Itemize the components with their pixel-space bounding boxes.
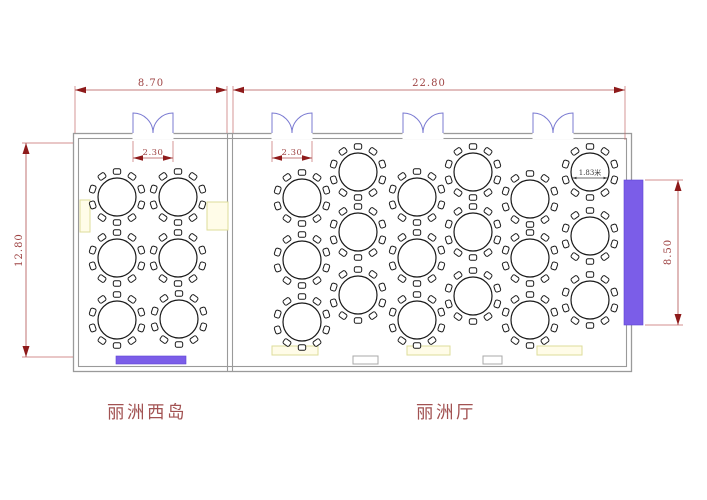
dim-arrow-right [614,87,625,93]
chair [298,170,305,176]
chair [570,275,579,284]
banquet-table [330,267,386,324]
chair [188,213,197,222]
service-table [537,346,582,355]
chair [540,295,549,304]
banquet-table [151,291,207,348]
dim-arrow-bottom [675,314,682,325]
banquet-table [445,144,501,201]
chair [151,307,159,316]
chair [338,248,347,257]
chair [158,274,167,283]
chair [570,188,579,197]
double-door: 2.30 [272,113,313,162]
chair [127,213,136,222]
chair [562,288,570,297]
left-room-stage [116,356,186,364]
chair [368,311,377,320]
chair [445,300,453,309]
chair [397,274,406,283]
chair [113,230,120,236]
banquet-table [150,169,206,226]
chair [437,324,445,333]
chair [427,233,436,242]
chair [274,202,282,211]
wall-notch [483,356,502,364]
floor-plan-drawing: 2.302.30 1.83米 8.70 22.80 12.80 8.50 [0,0,707,500]
table-top [454,277,492,315]
chair [312,276,321,285]
chair [469,255,476,261]
door-leaf-left [272,113,292,133]
chair [526,281,533,287]
chair [427,172,436,181]
chair [137,185,145,194]
chair [368,270,377,279]
chair [427,213,436,222]
table-top [283,241,321,279]
chair [469,204,476,210]
chair [298,232,305,238]
chair [282,297,291,306]
chair [389,324,397,333]
banquet-table [150,230,206,287]
chair [413,220,420,226]
door-leaf-right [153,113,173,133]
chair [338,270,347,279]
chair [562,304,570,313]
chair [610,288,618,297]
chair [469,319,476,325]
table-top [398,178,436,216]
chair [312,235,321,244]
chair [526,230,533,236]
chair [354,144,361,150]
chair [562,224,570,233]
chair [600,316,609,325]
chair [397,336,406,345]
chair [174,169,181,175]
banquet-table [89,230,145,287]
chair [586,259,593,265]
chair [510,233,519,242]
chair [127,295,136,304]
chair [322,326,330,335]
chair [282,214,291,223]
banquet-table [330,144,386,201]
table-top [571,281,609,319]
banquet-table [389,169,445,226]
table-top [159,239,197,277]
chair [330,176,338,185]
chair [437,308,445,317]
banquet-table [502,292,558,349]
chair [368,147,377,156]
chair [97,213,106,222]
chair [113,281,120,287]
chair [427,274,436,283]
chair [282,235,291,244]
chair [330,160,338,169]
chair [274,310,282,319]
banquet-table [562,208,618,265]
chair [330,299,338,308]
chair [322,248,330,257]
chair [113,343,120,349]
chair [378,160,386,169]
chair [322,264,330,273]
chair [600,252,609,261]
chair [274,264,282,273]
floor-plan-page: 2.302.30 1.83米 8.70 22.80 12.80 8.50 [0,0,707,500]
chair [274,186,282,195]
chair [540,336,549,345]
chair [437,201,445,210]
chair [550,308,558,317]
chair [502,187,510,196]
chair [540,174,549,183]
chair [89,262,97,271]
chair [502,203,510,212]
chair [600,211,609,220]
chair [89,324,97,333]
chair [312,297,321,306]
chair [453,207,462,216]
chair [397,213,406,222]
chair [389,246,397,255]
chair [493,220,501,229]
chair [389,308,397,317]
chair [389,262,397,271]
chair [298,221,305,227]
banquet-table [389,292,445,349]
chair [378,176,386,185]
dim-arrow-top [675,180,682,191]
chair [174,281,181,287]
chair [483,147,492,156]
chair [493,176,501,185]
chair [150,262,158,271]
chair [413,230,420,236]
chair [510,336,519,345]
dim-text-left-room-width: 8.70 [138,78,164,89]
chair [562,176,570,185]
chair [188,172,197,181]
chair [610,240,618,249]
chair [453,248,462,257]
chair [562,160,570,169]
chair [453,188,462,197]
door-width-dimension: 2.30 [143,148,164,158]
chair [127,336,136,345]
chair [526,292,533,298]
dimension-stage-length: 8.50 [645,180,683,325]
chair [413,281,420,287]
chair [330,283,338,292]
chair [89,185,97,194]
chair [282,276,291,285]
left-room-label: 丽洲西岛 [107,402,187,422]
service-table [207,202,228,230]
chair [378,299,386,308]
door-leaf-left [403,113,423,133]
chair [159,294,168,303]
chair [198,185,206,194]
chair [174,220,181,226]
table-top [98,301,136,339]
chair [188,233,197,242]
dimension-door-width: 2.30 [133,141,173,162]
chair [437,185,445,194]
chair [368,207,377,216]
chair [97,172,106,181]
chair [610,224,618,233]
banquet-table [502,230,558,287]
chair [526,222,533,228]
dim-arrow-top [23,143,30,154]
chair [175,291,182,297]
chair [127,233,136,242]
chair [199,307,207,316]
chair [510,174,519,183]
chair [198,201,206,210]
chair [312,214,321,223]
chair [469,195,476,201]
dim-arrow-right [216,87,227,93]
chair [483,207,492,216]
dim-text-hall-depth: 12.80 [14,233,25,267]
chair [453,147,462,156]
door-leaf-left [133,113,153,133]
chair [586,208,593,214]
door-leaf-left [533,113,553,133]
chair [550,203,558,212]
chair [175,342,182,348]
chair [586,272,593,278]
chair [550,246,558,255]
chair [483,271,492,280]
table-diameter-label: 1.83米 [579,168,602,177]
chair [526,171,533,177]
chair [97,295,106,304]
banquet-table [274,232,330,289]
chair [453,312,462,321]
chair [368,248,377,257]
banquet-table: 1.83米 [562,144,618,201]
table-top [511,180,549,218]
table-top [571,217,609,255]
door-leaf-right [553,113,573,133]
chair [445,176,453,185]
door-width-dimension: 2.30 [282,148,303,158]
chair [562,240,570,249]
chair [89,246,97,255]
chair [354,318,361,324]
chair [502,246,510,255]
chair [274,248,282,257]
chair [189,294,198,303]
table-top [398,239,436,277]
chair [137,324,145,333]
chair [510,295,519,304]
chair [113,292,120,298]
table-top [454,213,492,251]
chair [158,233,167,242]
chair [610,304,618,313]
chair [198,262,206,271]
banquet-table [445,268,501,325]
table-top [398,301,436,339]
chair [89,308,97,317]
table-top [160,300,198,338]
chair [198,246,206,255]
chair [483,312,492,321]
chair [137,246,145,255]
chair [389,201,397,210]
chair [550,262,558,271]
chair [437,262,445,271]
chair [322,186,330,195]
chair [150,246,158,255]
chair [502,262,510,271]
chair [113,220,120,226]
chair [427,336,436,345]
chair [397,172,406,181]
banquet-table [274,170,330,227]
table-top [98,178,136,216]
chair [97,274,106,283]
chair [510,215,519,224]
chair [338,188,347,197]
chair [493,300,501,309]
chair [338,207,347,216]
chair [493,284,501,293]
table-top [511,239,549,277]
chair [338,311,347,320]
chair [445,236,453,245]
chair [378,236,386,245]
chair [610,176,618,185]
chair [150,185,158,194]
chair [570,211,579,220]
banquet-table [502,171,558,228]
chair [137,308,145,317]
table-top [98,239,136,277]
chair [378,283,386,292]
chair [493,160,501,169]
double-door [403,113,444,139]
banquet-table [445,204,501,261]
chair [397,295,406,304]
table-top [454,153,492,191]
chair [469,268,476,274]
chair [282,173,291,182]
table-top [283,303,321,341]
right-room-label: 丽洲厅 [416,402,476,422]
chair [188,274,197,283]
chair [610,160,618,169]
chair [600,275,609,284]
door-leaf-right [423,113,443,133]
chair [540,233,549,242]
chair [397,233,406,242]
dimension-hall-depth: 12.80 [14,143,73,357]
chair [368,188,377,197]
service-table [80,200,90,232]
chair [199,323,207,332]
dim-arrow-left [233,87,244,93]
chair [550,187,558,196]
chair [354,204,361,210]
chair [322,202,330,211]
chair [502,324,510,333]
chair [174,230,181,236]
chair [330,220,338,229]
banquet-table [562,272,618,329]
chair [127,274,136,283]
chair [600,188,609,197]
dim-text-right-room-width: 22.80 [412,78,446,89]
chair [600,147,609,156]
banquet-table [89,292,145,349]
dimension-door-width: 2.30 [272,141,312,162]
chair [354,255,361,261]
chair [298,345,305,351]
table-top [159,178,197,216]
chair [445,160,453,169]
chair [189,335,198,344]
wall-notch [353,356,378,364]
door-leaf-right [292,113,312,133]
banquet-table [330,204,386,261]
dim-arrow-bottom [23,346,30,357]
dim-arrow-left [75,87,86,93]
chair [483,248,492,257]
chair [158,172,167,181]
chair [354,267,361,273]
chair [274,326,282,335]
banquet-tables: 1.83米 [89,144,618,351]
chair [445,284,453,293]
chair [97,233,106,242]
chair [570,147,579,156]
chair [570,252,579,261]
double-door: 2.30 [133,113,174,162]
chair [502,308,510,317]
table-top [339,213,377,251]
banquet-table [389,230,445,287]
chair [550,324,558,333]
chair [158,213,167,222]
chair [413,292,420,298]
banquet-table [274,294,330,351]
chair [483,188,492,197]
chair [354,195,361,201]
chair [150,201,158,210]
table-top [511,301,549,339]
chair [540,274,549,283]
chair [389,185,397,194]
chair [510,274,519,283]
chair [526,343,533,349]
chair [445,220,453,229]
table-top [283,179,321,217]
right-room-stage [624,180,643,325]
chair [570,316,579,325]
chair [437,246,445,255]
chair [453,271,462,280]
table-top [339,153,377,191]
